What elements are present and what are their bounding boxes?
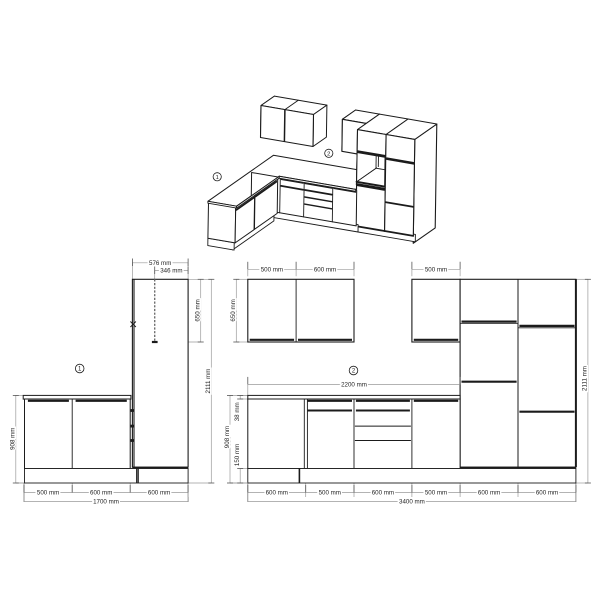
svg-text:2111 mm: 2111 mm <box>582 366 589 391</box>
svg-text:600 mm: 600 mm <box>536 490 558 497</box>
svg-text:1700 mm: 1700 mm <box>93 499 119 506</box>
svg-text:2200 mm: 2200 mm <box>341 382 367 389</box>
svg-text:500 mm: 500 mm <box>37 490 59 497</box>
svg-text:908 mm: 908 mm <box>224 426 231 448</box>
svg-text:650 mm: 650 mm <box>195 299 202 321</box>
svg-text:1: 1 <box>216 175 219 181</box>
svg-text:500 mm: 500 mm <box>319 490 341 497</box>
svg-text:2111 mm: 2111 mm <box>205 369 212 394</box>
svg-text:576 mm: 576 mm <box>149 260 171 267</box>
svg-text:3400 mm: 3400 mm <box>399 499 425 506</box>
svg-text:346 mm: 346 mm <box>160 268 182 275</box>
svg-text:650 mm: 650 mm <box>230 299 237 321</box>
svg-text:600 mm: 600 mm <box>372 490 394 497</box>
svg-text:500 mm: 500 mm <box>425 266 447 273</box>
svg-text:600 mm: 600 mm <box>314 266 336 273</box>
svg-text:600 mm: 600 mm <box>478 490 500 497</box>
svg-text:500 mm: 500 mm <box>425 490 447 497</box>
svg-text:38 mm: 38 mm <box>234 402 241 421</box>
svg-text:500 mm: 500 mm <box>261 266 283 273</box>
svg-text:600 mm: 600 mm <box>90 490 112 497</box>
svg-text:2: 2 <box>327 151 330 157</box>
svg-text:600 mm: 600 mm <box>148 490 170 497</box>
svg-text:150 mm: 150 mm <box>234 444 241 466</box>
svg-text:908 mm: 908 mm <box>10 428 17 450</box>
svg-text:600 mm: 600 mm <box>266 490 288 497</box>
